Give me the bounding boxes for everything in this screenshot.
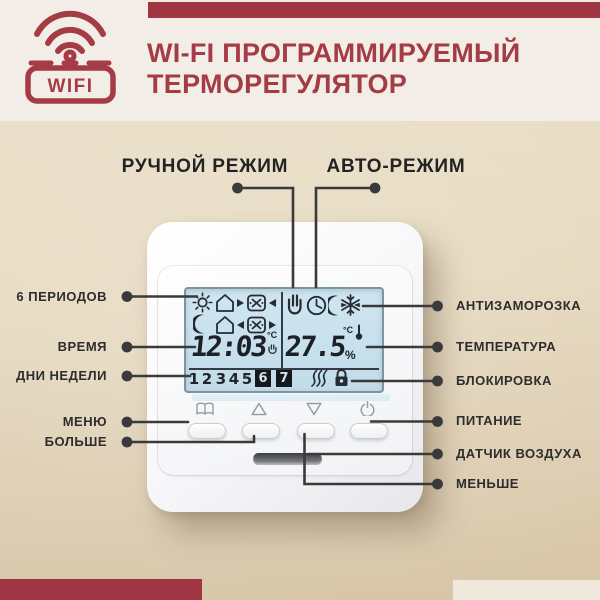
snowflake-frost-icon	[340, 294, 361, 316]
bottom-red-accent-bar	[0, 579, 202, 600]
day-1: 1	[187, 370, 201, 388]
up-button[interactable]	[242, 423, 280, 439]
day-3: 3	[214, 370, 228, 388]
callout-more: БОЛЬШЕ	[45, 435, 107, 449]
house-return-arrow-icon	[237, 321, 244, 329]
heating-waves-icon	[311, 369, 328, 387]
arrow-down-icon	[306, 402, 322, 416]
arrow-up-icon	[251, 402, 267, 416]
callout-weekdays: ДНИ НЕДЕЛИ	[16, 369, 107, 383]
down-button[interactable]	[297, 423, 335, 439]
power-icon	[360, 401, 375, 416]
menu-book-icon	[195, 402, 215, 416]
thermostat-device: 12:03 °C	[147, 222, 423, 512]
temperature-display: 27.5	[284, 333, 346, 361]
callout-6-periods: 6 ПЕРИОДОВ	[16, 290, 107, 304]
day-5: 5	[240, 370, 254, 388]
dot-antifreeze	[432, 301, 443, 312]
dot-6-periods	[122, 291, 133, 302]
dot-menu	[122, 417, 133, 428]
day-2: 2	[200, 370, 214, 388]
work-leave-arrow-icon	[269, 321, 276, 329]
dot-power	[432, 416, 443, 427]
hand-manual-icon	[286, 293, 303, 319]
callout-temperature: ТЕМПЕРАТУРА	[456, 340, 556, 354]
work-arrive-arrow-icon	[269, 299, 276, 307]
lcd-display: 12:03 °C	[184, 287, 384, 393]
clock-auto-icon	[306, 295, 327, 316]
day-6-active: 6	[255, 370, 271, 387]
dot-time	[122, 342, 133, 353]
lcd-glass-edge	[192, 394, 390, 401]
page-title: WI-FI ПРОГРАММИРУЕМЫЙ ТЕРМОРЕГУЛЯТОР	[147, 38, 520, 100]
callout-less: МЕНЬШЕ	[456, 477, 519, 491]
wifi-waves-icon	[37, 14, 103, 51]
dot-lock	[432, 376, 443, 387]
dot-less	[432, 479, 443, 490]
sun-icon	[192, 292, 213, 313]
wifi-logo: WIFI	[20, 4, 120, 118]
dot-temperature	[432, 342, 443, 353]
dot-air-sensor	[432, 449, 443, 460]
title-line1: WI-FI ПРОГРАММИРУЕМЫЙ	[147, 38, 520, 69]
callout-power: ПИТАНИЕ	[456, 414, 522, 428]
manual-mode-label: РУЧНОЙ РЕЖИМ	[112, 156, 298, 178]
work-arrive-icon	[246, 293, 267, 313]
house-leave-arrow-icon	[237, 299, 244, 307]
dot-weekdays	[122, 371, 133, 382]
dot-auto-mode	[370, 183, 381, 194]
time-unit: °C	[267, 331, 277, 340]
callout-lock: БЛОКИРОВКА	[456, 374, 552, 388]
day-7-active: 7	[276, 370, 292, 387]
menu-button[interactable]	[188, 423, 226, 439]
dot-more	[122, 437, 133, 448]
title-line2: ТЕРМОРЕГУЛЯТОР	[147, 69, 520, 100]
callout-antifreeze: АНТИЗАМОРОЗКА	[456, 299, 581, 313]
callout-air-sensor: ДАТЧИК ВОЗДУХА	[456, 447, 582, 461]
product-infographic: WIFI WI-FI ПРОГРАММИРУЕМЫЙ ТЕРМОРЕГУЛЯТО…	[0, 0, 600, 600]
thermometer-icon	[355, 324, 363, 341]
bottom-cream-block	[453, 580, 600, 600]
humidity-unit: %	[345, 348, 356, 362]
callout-menu: МЕНЮ	[63, 415, 107, 429]
callout-time: ВРЕМЯ	[58, 340, 107, 354]
wifi-dot-icon	[66, 52, 74, 60]
temperature-unit: °C	[343, 326, 353, 335]
top-red-accent-bar	[148, 2, 600, 18]
lock-icon	[333, 368, 350, 387]
night-moon-icon	[328, 295, 340, 316]
air-sensor-vent	[253, 453, 322, 465]
dot-manual-mode	[232, 183, 243, 194]
house-leave-icon	[214, 293, 236, 313]
wifi-badge-label: WIFI	[47, 76, 93, 97]
power-button[interactable]	[350, 423, 388, 439]
manual-mini-hand-icon	[267, 343, 278, 356]
day-4: 4	[227, 370, 241, 388]
time-display: 12:03	[190, 333, 267, 361]
lcd-divider-line	[281, 292, 283, 368]
auto-mode-label: АВТО-РЕЖИМ	[320, 156, 472, 178]
